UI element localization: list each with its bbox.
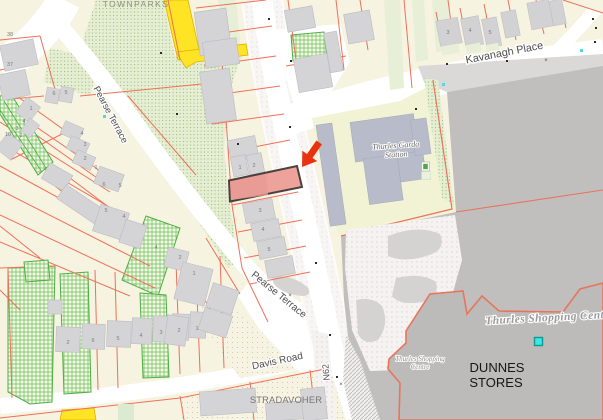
svg-text:4: 4 bbox=[261, 227, 264, 233]
svg-text:1: 1 bbox=[238, 165, 241, 171]
svg-text:5: 5 bbox=[118, 183, 121, 189]
svg-text:10: 10 bbox=[5, 132, 11, 138]
svg-text:1: 1 bbox=[195, 326, 198, 332]
svg-text:TOWNPARKS: TOWNPARKS bbox=[103, 0, 170, 9]
svg-text:3: 3 bbox=[15, 126, 18, 132]
svg-text:Station: Station bbox=[385, 149, 408, 160]
svg-text:3: 3 bbox=[159, 330, 162, 336]
svg-text:STRADAVOHER: STRADAVOHER bbox=[250, 395, 322, 405]
svg-text:1: 1 bbox=[94, 165, 97, 171]
svg-text:Centre: Centre bbox=[411, 363, 430, 371]
svg-text:5: 5 bbox=[488, 30, 491, 36]
svg-text:4: 4 bbox=[122, 214, 125, 220]
svg-text:2: 2 bbox=[252, 163, 255, 169]
svg-text:2: 2 bbox=[19, 133, 22, 139]
svg-text:×: × bbox=[339, 382, 343, 388]
svg-text:38: 38 bbox=[7, 32, 13, 38]
svg-text:Thurles Shopping: Thurles Shopping bbox=[395, 355, 445, 363]
svg-text:3: 3 bbox=[258, 208, 261, 214]
svg-text:4: 4 bbox=[139, 333, 142, 339]
svg-text:1: 1 bbox=[29, 106, 32, 112]
svg-text:5: 5 bbox=[104, 208, 107, 214]
svg-text:3: 3 bbox=[83, 142, 86, 148]
svg-text:3: 3 bbox=[446, 30, 449, 36]
svg-text:4: 4 bbox=[468, 28, 471, 34]
svg-text:37: 37 bbox=[7, 62, 13, 68]
svg-text:N62: N62 bbox=[320, 364, 331, 381]
svg-text:5: 5 bbox=[267, 247, 270, 253]
svg-text:2: 2 bbox=[66, 340, 69, 346]
svg-text:DUNNES: DUNNES bbox=[470, 360, 525, 375]
svg-text:4: 4 bbox=[22, 119, 25, 125]
svg-text:2: 2 bbox=[178, 255, 181, 261]
svg-text:4: 4 bbox=[80, 131, 83, 137]
svg-text:STORES: STORES bbox=[469, 375, 523, 390]
svg-text:×: × bbox=[544, 58, 548, 64]
svg-text:4: 4 bbox=[154, 245, 157, 251]
svg-text:5: 5 bbox=[116, 336, 119, 342]
svg-text:2: 2 bbox=[177, 328, 180, 334]
svg-text:5: 5 bbox=[64, 90, 67, 96]
svg-text:6: 6 bbox=[52, 91, 55, 97]
svg-text:6: 6 bbox=[91, 338, 94, 344]
svg-text:2: 2 bbox=[83, 156, 86, 162]
svg-text:1: 1 bbox=[192, 271, 195, 277]
svg-text:6: 6 bbox=[102, 182, 105, 188]
